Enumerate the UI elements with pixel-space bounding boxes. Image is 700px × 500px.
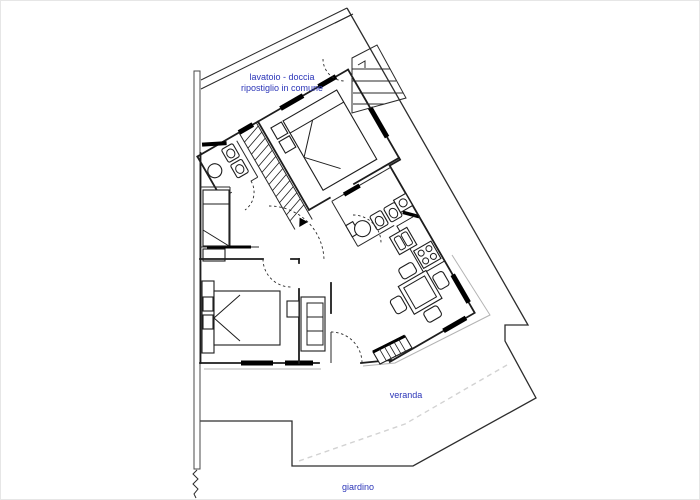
door-swing-arc bbox=[263, 259, 291, 287]
bidet-icon bbox=[230, 159, 249, 178]
washbasin-icon bbox=[352, 218, 374, 240]
stair-direction-arrow bbox=[295, 215, 308, 227]
orthogonal-wing bbox=[200, 153, 391, 363]
site-wall bbox=[194, 71, 200, 469]
nightstand-icon bbox=[203, 297, 213, 311]
dashed-property-line bbox=[296, 365, 507, 462]
label-veranda: veranda bbox=[390, 390, 423, 400]
window-bar bbox=[239, 125, 253, 133]
side-table-icon bbox=[287, 301, 299, 317]
window-bar bbox=[453, 275, 469, 303]
door-swing-arc bbox=[323, 59, 345, 81]
floor-plan-canvas: lavatoio - doccia ripostiglio in comune … bbox=[1, 1, 700, 500]
sofa-icon bbox=[301, 297, 325, 351]
double-bed-icon bbox=[283, 90, 377, 190]
door-swing-arc bbox=[245, 181, 254, 210]
window-bar bbox=[370, 108, 387, 137]
door-threshold bbox=[343, 184, 361, 197]
double-bed-icon bbox=[214, 291, 280, 345]
door-swing-arc bbox=[269, 206, 324, 261]
door-swing-arc bbox=[331, 332, 362, 363]
fence-squiggle bbox=[193, 470, 198, 498]
window-bar bbox=[281, 96, 304, 109]
toilet-icon bbox=[221, 143, 240, 162]
label-common-laundry-line1: lavatoio - doccia bbox=[249, 72, 314, 82]
bedroom-2 bbox=[200, 259, 299, 363]
step-direction-mark bbox=[358, 61, 365, 68]
nightstand-icon bbox=[203, 315, 213, 329]
label-common-laundry-line2: ripostiglio in comune bbox=[241, 83, 323, 93]
stove-icon bbox=[414, 241, 441, 268]
exterior-steps bbox=[352, 45, 406, 113]
bathroom-1 bbox=[193, 118, 276, 198]
single-bedroom bbox=[200, 187, 259, 261]
fence-line bbox=[335, 14, 353, 23]
floor-plan-page: lavatoio - doccia ripostiglio in comune … bbox=[0, 0, 700, 500]
living-area bbox=[287, 283, 331, 351]
washbasin-icon bbox=[205, 161, 224, 180]
label-garden: giardino bbox=[342, 482, 374, 492]
